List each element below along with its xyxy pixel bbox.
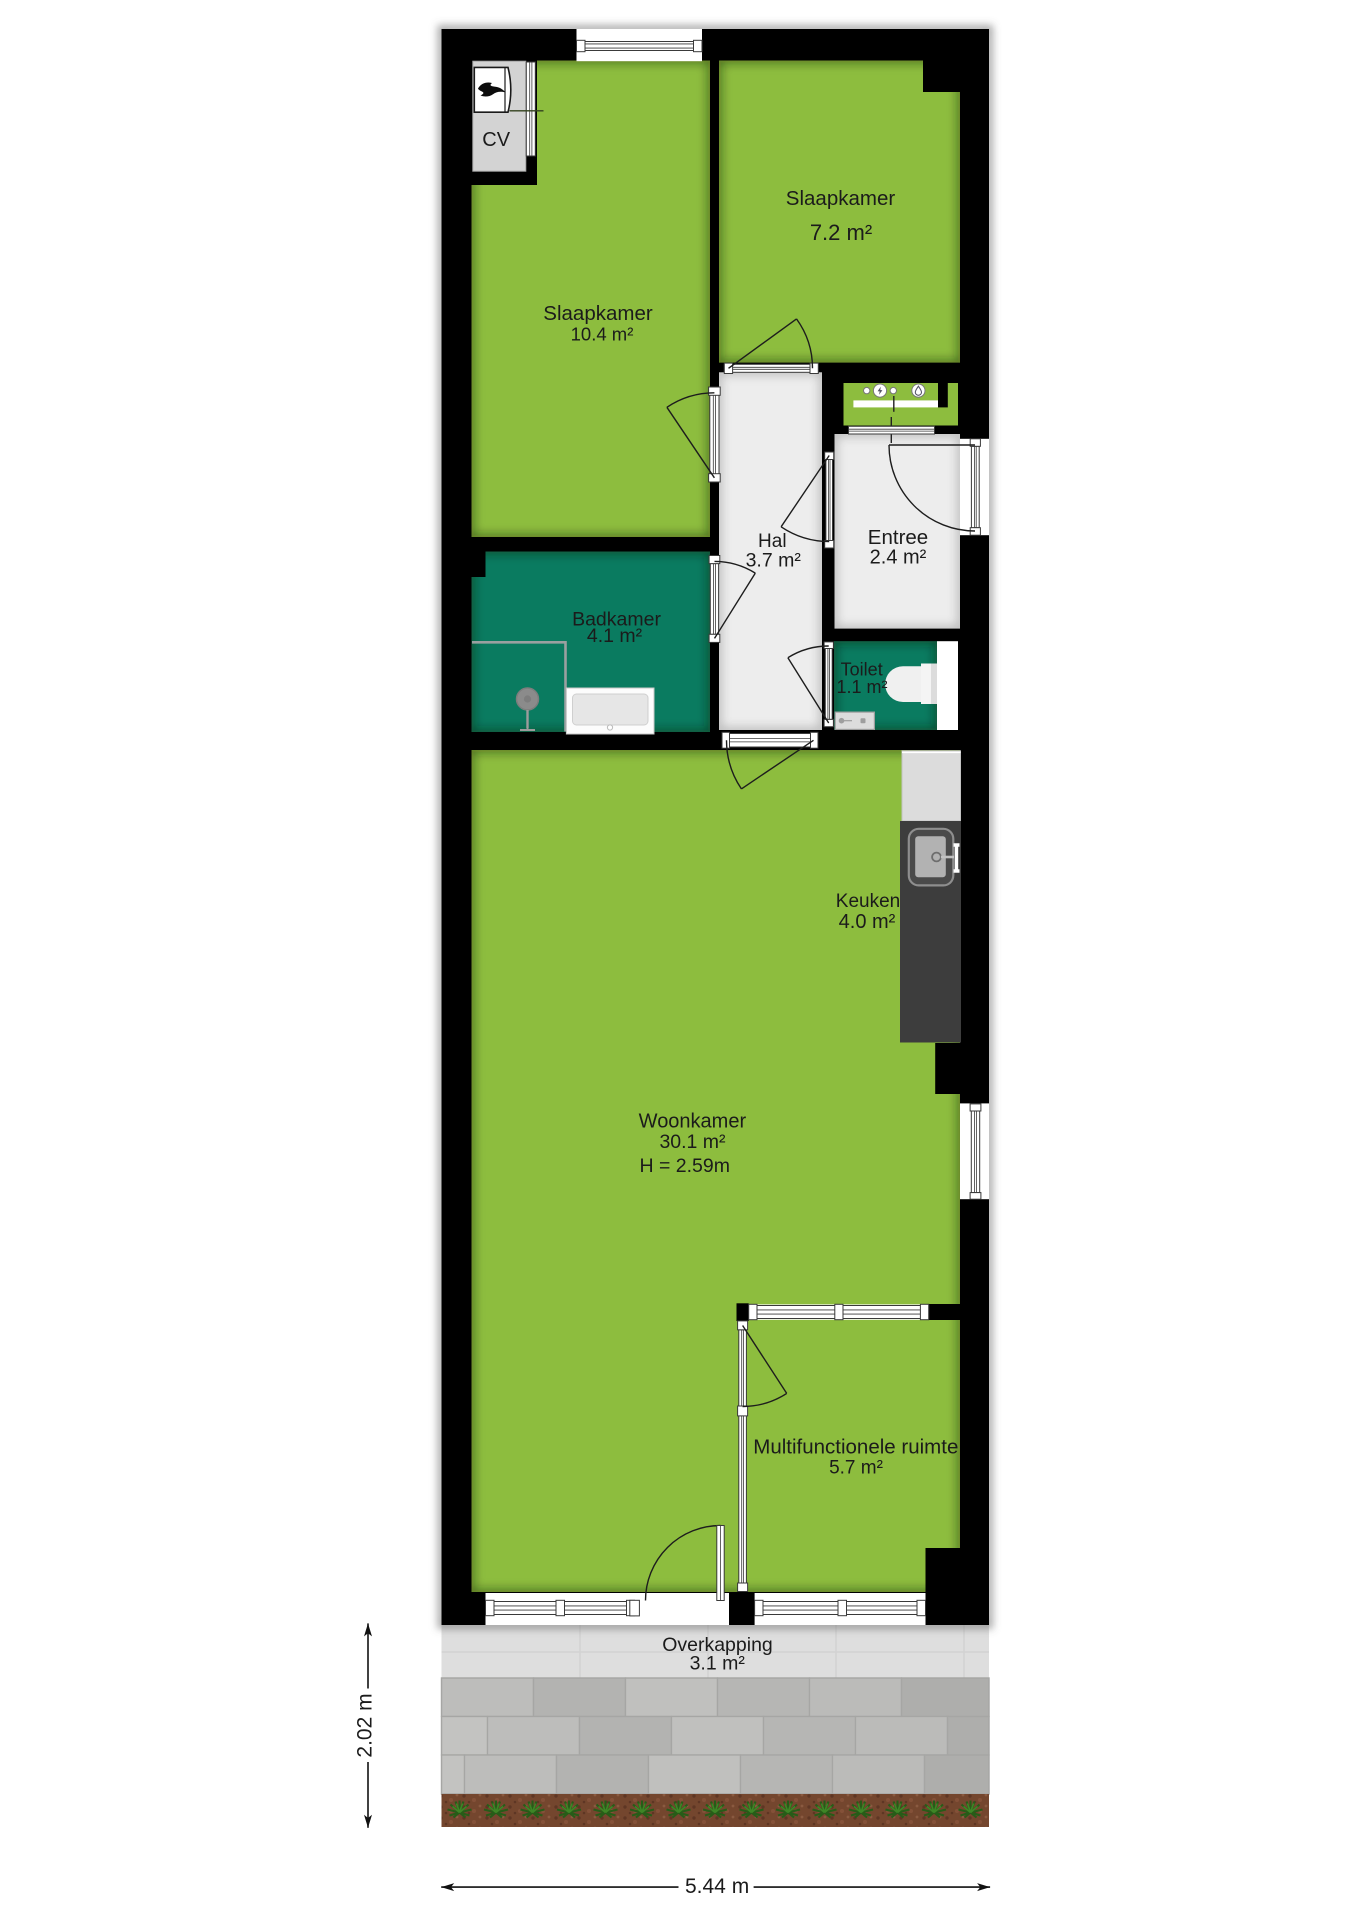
svg-text:30.1 m²: 30.1 m² [659, 1131, 726, 1153]
svg-text:Slaapkamer: Slaapkamer [786, 187, 896, 210]
svg-text:Multifunctionele ruimte: Multifunctionele ruimte [753, 1436, 958, 1459]
svg-text:4.1 m²: 4.1 m² [587, 625, 643, 647]
svg-text:CV: CV [482, 129, 510, 151]
svg-text:2.4 m²: 2.4 m² [870, 547, 927, 569]
svg-text:4.0 m²: 4.0 m² [839, 911, 896, 933]
svg-text:2.02 m: 2.02 m [354, 1693, 377, 1757]
svg-text:1.1 m²: 1.1 m² [836, 677, 887, 697]
svg-text:Slaapkamer: Slaapkamer [543, 302, 653, 325]
svg-text:Keuken: Keuken [836, 891, 900, 912]
svg-text:3.7 m²: 3.7 m² [746, 550, 802, 572]
svg-text:10.4 m²: 10.4 m² [571, 324, 634, 345]
svg-text:3.1 m²: 3.1 m² [690, 1653, 746, 1675]
svg-text:5.44 m: 5.44 m [685, 1875, 749, 1898]
svg-text:5.7 m²: 5.7 m² [829, 1458, 883, 1479]
svg-text:H = 2.59m: H = 2.59m [639, 1155, 730, 1177]
svg-text:Woonkamer: Woonkamer [639, 1110, 747, 1132]
svg-text:7.2 m²: 7.2 m² [810, 220, 872, 245]
